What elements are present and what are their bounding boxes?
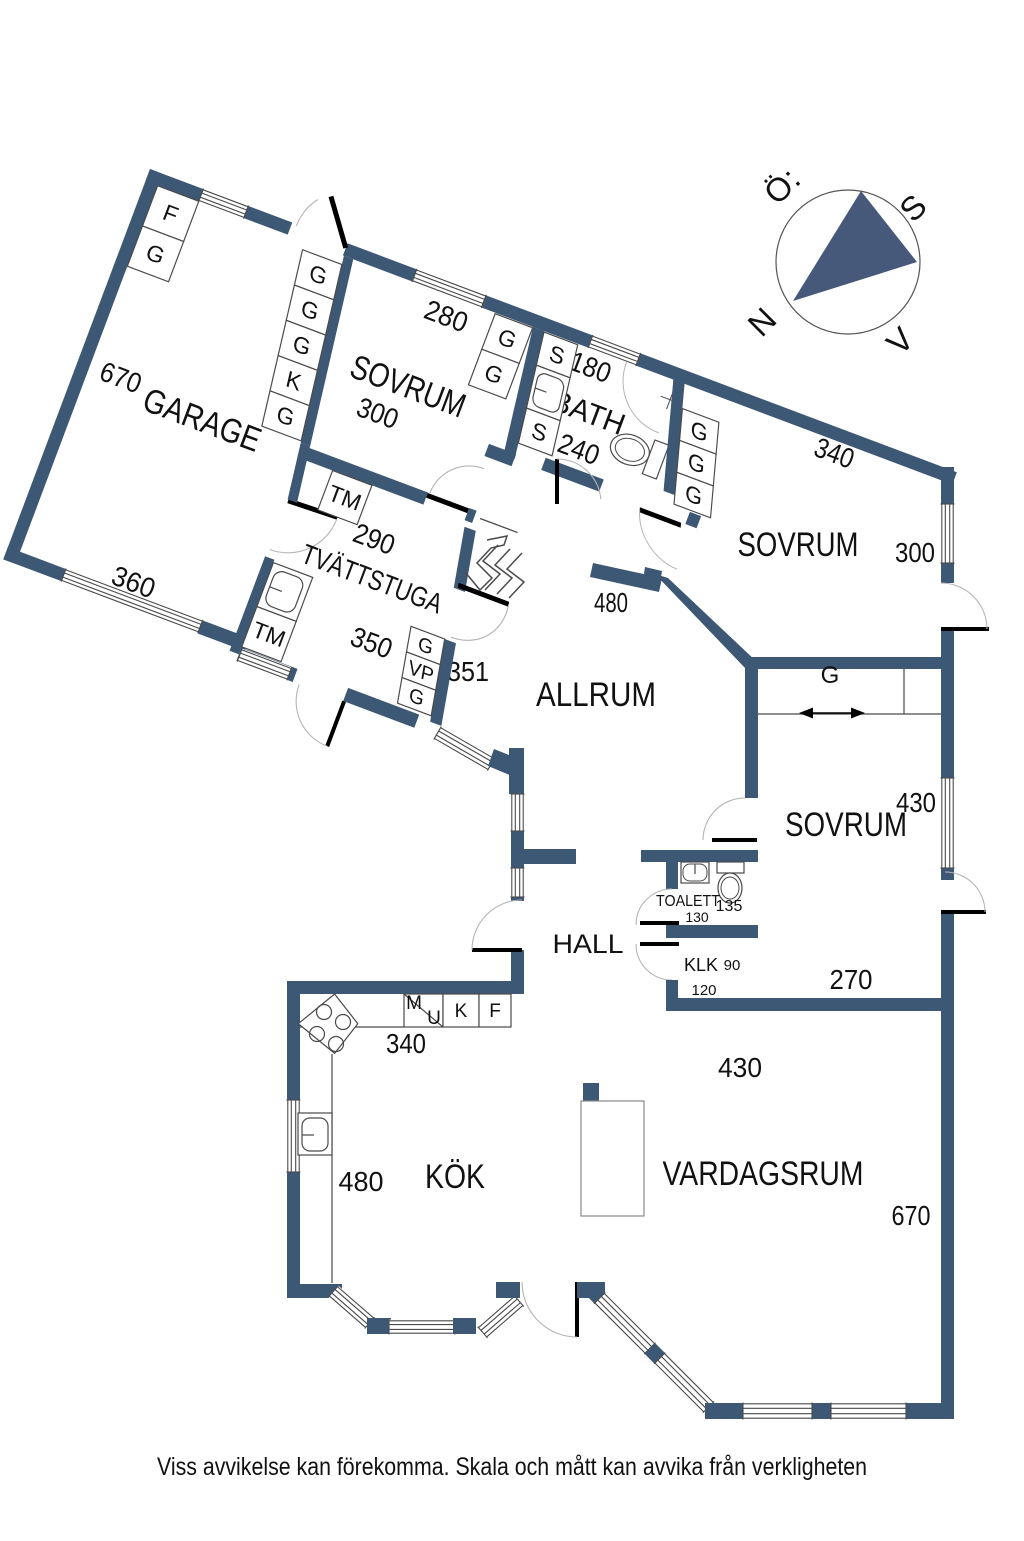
svg-text:351: 351 xyxy=(447,656,489,687)
svg-text:K: K xyxy=(455,1001,468,1022)
svg-text:135: 135 xyxy=(716,898,743,915)
svg-text:HALL: HALL xyxy=(553,929,624,959)
svg-text:670: 670 xyxy=(892,1200,931,1231)
svg-text:U: U xyxy=(427,1008,441,1029)
svg-text:430: 430 xyxy=(718,1052,762,1083)
svg-text:300: 300 xyxy=(895,537,935,568)
svg-text:SOVRUM: SOVRUM xyxy=(738,526,859,564)
svg-text:270: 270 xyxy=(830,964,873,995)
svg-text:F: F xyxy=(489,1001,501,1022)
svg-text:480: 480 xyxy=(594,587,628,618)
svg-text:VARDAGSRUM: VARDAGSRUM xyxy=(663,1155,864,1193)
svg-text:430: 430 xyxy=(896,787,936,818)
svg-text:480: 480 xyxy=(339,1166,384,1197)
svg-text:KÖK: KÖK xyxy=(425,1158,485,1196)
svg-text:KLK: KLK xyxy=(684,955,718,975)
svg-text:340: 340 xyxy=(386,1028,426,1059)
svg-text:SOVRUM: SOVRUM xyxy=(785,806,907,844)
svg-text:Viss avvikelse kan förekomma.: Viss avvikelse kan förekomma. Skala och … xyxy=(157,1453,867,1481)
svg-text:ALLRUM: ALLRUM xyxy=(536,676,656,714)
svg-text:90: 90 xyxy=(724,957,741,974)
svg-text:130: 130 xyxy=(685,909,709,925)
svg-text:M: M xyxy=(406,993,422,1014)
svg-text:TOALETT: TOALETT xyxy=(656,893,720,910)
svg-text:120: 120 xyxy=(691,982,716,999)
svg-text:G: G xyxy=(821,662,840,689)
